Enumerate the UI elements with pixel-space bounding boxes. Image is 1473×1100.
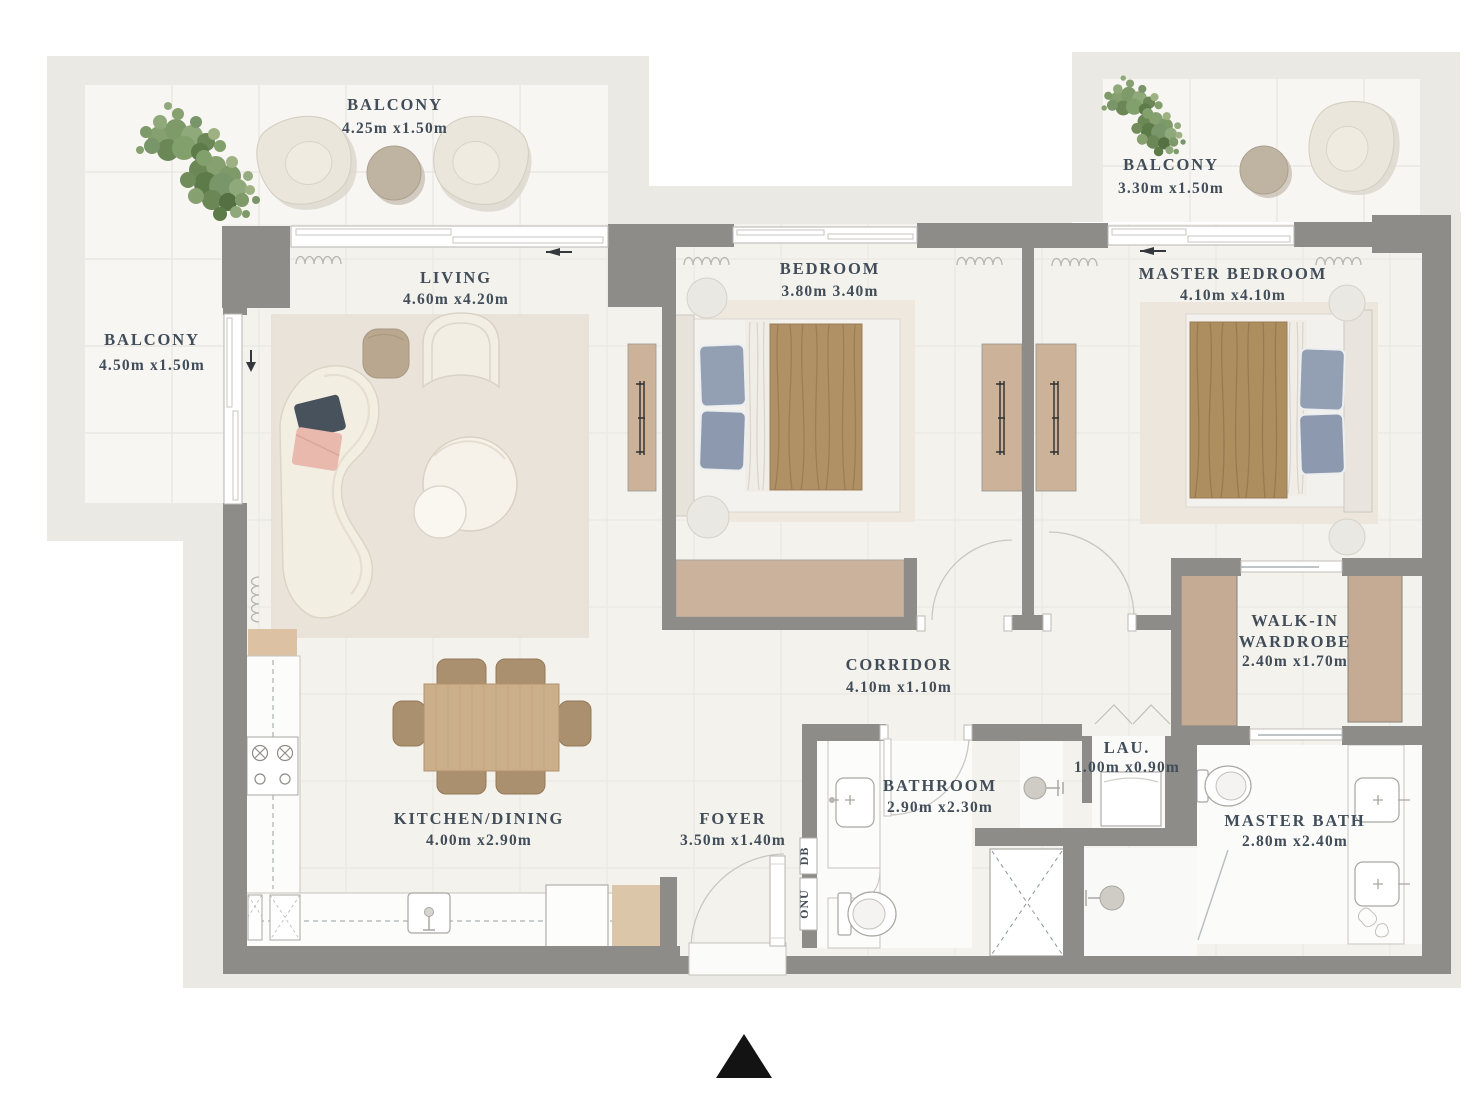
svg-text:3.80m 3.40m: 3.80m 3.40m — [781, 283, 878, 300]
svg-text:3.30m x1.50m: 3.30m x1.50m — [1118, 180, 1224, 197]
svg-text:LAU.: LAU. — [1104, 738, 1151, 757]
svg-text:DB: DB — [797, 847, 811, 866]
svg-text:2.40m x1.70m: 2.40m x1.70m — [1242, 653, 1348, 670]
svg-text:BALCONY: BALCONY — [1123, 155, 1219, 174]
svg-text:4.50m x1.50m: 4.50m x1.50m — [99, 357, 205, 374]
svg-text:LIVING: LIVING — [420, 268, 492, 287]
svg-text:4.10m x4.10m: 4.10m x4.10m — [1180, 287, 1286, 304]
svg-text:1.00m x0.90m: 1.00m x0.90m — [1074, 759, 1180, 776]
svg-text:FOYER: FOYER — [699, 809, 766, 828]
svg-text:CORRIDOR: CORRIDOR — [846, 655, 953, 674]
svg-text:4.60m x4.20m: 4.60m x4.20m — [403, 291, 509, 308]
svg-text:4.00m x2.90m: 4.00m x2.90m — [426, 832, 532, 849]
svg-text:BALCONY: BALCONY — [104, 330, 200, 349]
svg-text:4.25m x1.50m: 4.25m x1.50m — [342, 120, 448, 137]
svg-text:ONU: ONU — [797, 889, 811, 919]
svg-text:3.50m x1.40m: 3.50m x1.40m — [680, 832, 786, 849]
svg-text:MASTER BEDROOM: MASTER BEDROOM — [1139, 264, 1327, 283]
svg-text:2.80m x2.40m: 2.80m x2.40m — [1242, 833, 1348, 850]
svg-text:BATHROOM: BATHROOM — [883, 776, 997, 795]
svg-text:BALCONY: BALCONY — [347, 95, 443, 114]
svg-text:2.90m x2.30m: 2.90m x2.30m — [887, 799, 993, 816]
svg-text:BEDROOM: BEDROOM — [780, 259, 880, 278]
svg-text:WALK-IN: WALK-IN — [1251, 611, 1339, 630]
svg-text:KITCHEN/DINING: KITCHEN/DINING — [394, 809, 565, 828]
svg-text:4.10m x1.10m: 4.10m x1.10m — [846, 679, 952, 696]
svg-text:MASTER BATH: MASTER BATH — [1224, 811, 1365, 830]
svg-text:WARDROBE: WARDROBE — [1239, 632, 1351, 651]
